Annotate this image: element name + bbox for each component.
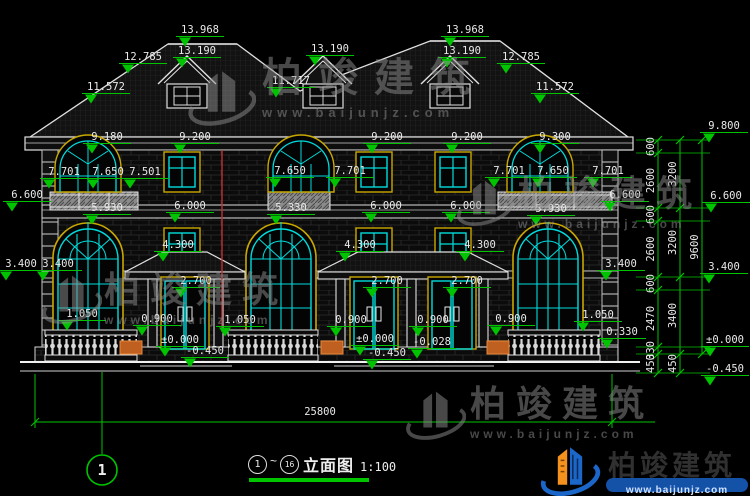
svg-text:9600: 9600 [689,234,701,259]
svg-text:6.000: 6.000 [450,200,482,212]
level-flag: 6.600 [702,190,750,213]
level-flag: -0.450 [181,345,229,368]
overall-dimension [31,372,655,454]
svg-text:2.700: 2.700 [371,275,403,287]
svg-text:0.900: 0.900 [335,314,367,326]
svg-text:2600: 2600 [645,236,657,261]
svg-text:13.190: 13.190 [178,45,216,57]
svg-text:2.700: 2.700 [451,275,483,287]
svg-text:7.701: 7.701 [334,165,366,177]
svg-text:0.900: 0.900 [141,313,173,325]
dimension-chain-column: 600260060026006002470330450 [645,136,662,377]
svg-text:9.300: 9.300 [539,131,571,143]
svg-text:7.701: 7.701 [592,165,624,177]
svg-text:450: 450 [645,354,657,373]
ground-lines [20,362,640,371]
svg-text:7.701: 7.701 [48,166,80,178]
svg-text:9.180: 9.180 [91,131,123,143]
svg-text:12.785: 12.785 [124,51,162,63]
overall-dimension-label: 25800 [304,406,336,418]
dimension-chain-column: 9600 [689,136,706,358]
window-bigarch-mid [246,222,316,332]
svg-text:0.900: 0.900 [417,314,449,326]
title-tilde: ~ [270,454,277,468]
svg-text:7.701: 7.701 [493,165,525,177]
svg-text:4.300: 4.300 [464,239,496,251]
svg-text:6.600: 6.600 [710,190,742,202]
dimension-chain-column: 320032003400450 [667,136,684,377]
svg-text:1.050: 1.050 [224,314,256,326]
title-underline [249,478,369,482]
svg-text:7.650: 7.650 [92,166,124,178]
svg-text:7.501: 7.501 [129,166,161,178]
svg-text:±0.000: ±0.000 [706,334,744,346]
level-flag: 13.968 [176,24,224,47]
svg-text:2470: 2470 [645,306,657,331]
svg-text:13.190: 13.190 [311,43,349,55]
svg-text:3.400: 3.400 [5,258,37,270]
balustrade-1f-mid [228,330,318,361]
svg-text:2600: 2600 [645,168,657,193]
title-name: 立面图 [303,452,354,476]
svg-text:13.190: 13.190 [443,45,481,57]
svg-text:6.600: 6.600 [609,189,641,201]
svg-text:3200: 3200 [667,161,679,186]
svg-text:3.400: 3.400 [605,258,637,270]
svg-text:9.800: 9.800 [708,120,740,132]
svg-text:3.400: 3.400 [708,261,740,273]
svg-text:1.050: 1.050 [66,308,98,320]
level-flag: 9.800 [700,120,748,143]
balustrade-1f-right [508,330,600,361]
svg-text:3200: 3200 [667,230,679,255]
svg-text:-0.028: -0.028 [413,336,451,348]
svg-text:-0.450: -0.450 [368,347,406,359]
title-bubble-end: 16 [280,455,299,474]
svg-text:4.300: 4.300 [162,239,194,251]
window-arch-3f-center [268,135,334,192]
svg-text:13.968: 13.968 [181,24,219,36]
svg-text:13.968: 13.968 [446,24,484,36]
svg-text:-0.450: -0.450 [186,345,224,357]
svg-text:11.572: 11.572 [87,81,125,93]
title-bubble-start: 1 [248,455,267,474]
title-scale: 1:100 [360,460,396,474]
drawing-title: 1 ~ 16 立面图 1:100 [248,452,396,476]
svg-text:7.650: 7.650 [537,165,569,177]
svg-text:3.400: 3.400 [42,258,74,270]
svg-text:12.785: 12.785 [502,51,540,63]
window-rect-3f-3 [435,152,471,192]
cad-canvas: 25800 1 13.96813.19013.19013.96813.19012… [0,0,750,496]
svg-text:9.200: 9.200 [179,131,211,143]
window-rect-3f-1 [164,152,200,192]
svg-text:6.000: 6.000 [174,200,206,212]
level-flag: 3.400 [0,258,45,281]
svg-text:-0.450: -0.450 [706,363,744,375]
svg-text:5.930: 5.930 [91,202,123,214]
svg-text:5.330: 5.330 [275,202,307,214]
svg-text:11.717: 11.717 [272,75,310,87]
svg-text:7.650: 7.650 [274,165,306,177]
level-flag: ±0.000 [701,334,749,357]
svg-text:6.600: 6.600 [11,189,43,201]
svg-text:0.330: 0.330 [606,326,638,338]
svg-text:6.000: 6.000 [370,200,402,212]
svg-text:450: 450 [667,354,679,373]
svg-text:2.700: 2.700 [180,275,212,287]
svg-text:1.050: 1.050 [582,309,614,321]
svg-text:9.200: 9.200 [451,131,483,143]
svg-text:11.572: 11.572 [536,81,574,93]
elevation-drawing: 25800 1 13.96813.19013.19013.96813.19012… [0,0,750,496]
svg-text:9.200: 9.200 [371,131,403,143]
level-flag: 3.400 [700,261,748,284]
svg-text:0.900: 0.900 [495,313,527,325]
svg-text:3400: 3400 [667,303,679,328]
svg-text:±0.000: ±0.000 [356,333,394,345]
svg-text:5.930: 5.930 [535,203,567,215]
level-flag: -0.450 [701,363,749,386]
svg-text:1: 1 [97,461,106,479]
svg-text:4.300: 4.300 [344,239,376,251]
grid-bubble: 1 [87,455,117,485]
